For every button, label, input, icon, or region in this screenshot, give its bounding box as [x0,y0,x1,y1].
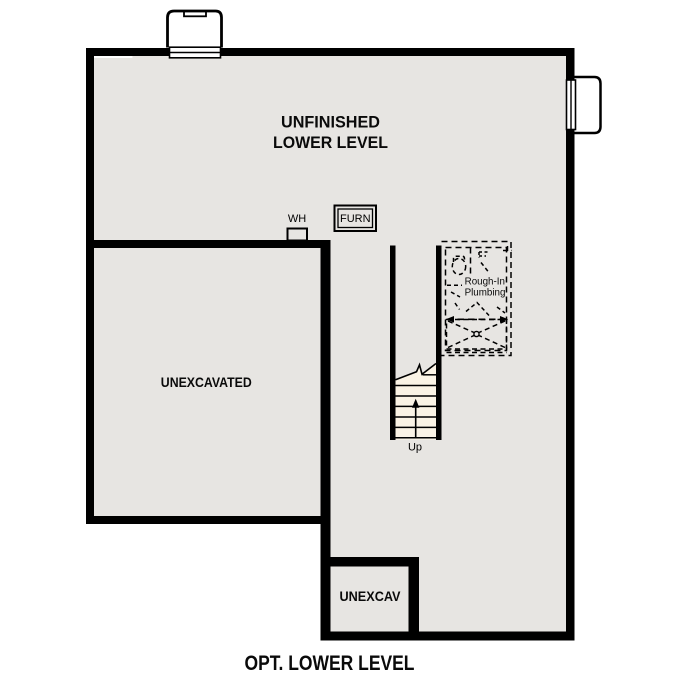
svg-text:UNEXCAV: UNEXCAV [340,588,402,604]
svg-text:OPT. LOWER LEVEL: OPT. LOWER LEVEL [245,652,415,675]
svg-text:FURN: FURN [340,213,371,225]
svg-text:LOWER LEVEL: LOWER LEVEL [273,133,388,152]
svg-text:UNEXCAVATED: UNEXCAVATED [161,374,252,390]
svg-text:UNFINISHED: UNFINISHED [281,113,380,132]
svg-text:Plumbing: Plumbing [465,287,506,298]
svg-text:Up: Up [408,442,422,454]
svg-text:WH: WH [288,213,306,225]
svg-text:Rough-In: Rough-In [465,276,505,287]
